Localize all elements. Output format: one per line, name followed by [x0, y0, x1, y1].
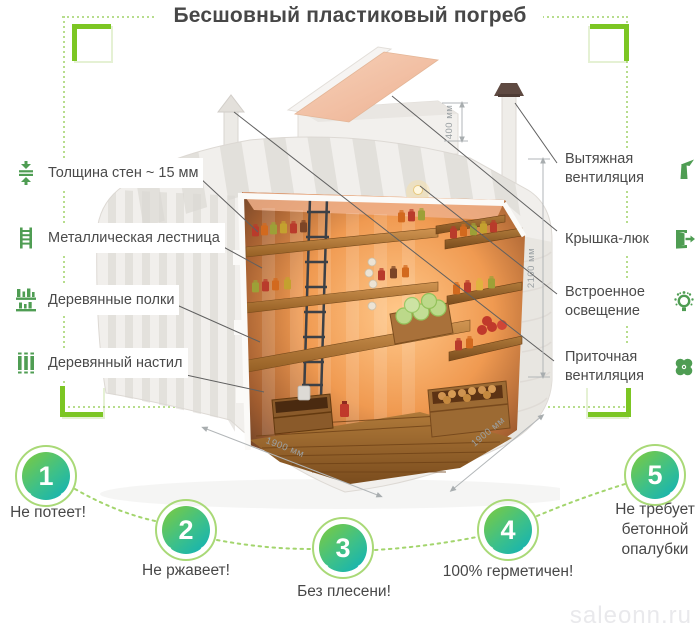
feature-wooden-shelves: Деревянные полки — [8, 285, 179, 315]
feature-wooden-shelves-label: Деревянные полки — [48, 292, 174, 308]
benefit-number-2: 2 — [162, 506, 210, 554]
benefit-label-4: 100% герметичен! — [433, 562, 583, 582]
feature-wall-thickness: Толщина стен ~ 15 мм — [8, 158, 203, 188]
hatch-icon — [671, 226, 697, 252]
benefit-number-4: 4 — [484, 506, 532, 554]
exhaust-vent-icon — [671, 156, 697, 182]
dimension-inner-height-label: 2100 мм — [526, 248, 537, 288]
benefit-label-1: Не потеет! — [0, 503, 96, 523]
frame-bracket-top-right — [590, 24, 629, 61]
benefit-badge-5: 5 — [624, 444, 686, 506]
benefit-badge-2: 2 — [155, 499, 217, 561]
benefit-badge-1: 1 — [15, 445, 77, 507]
feature-metal-ladder-label: Металлическая лестница — [48, 230, 220, 246]
benefit-number-5: 5 — [631, 451, 679, 499]
page-title: Бесшовный пластиковый погреб — [0, 4, 700, 28]
benefit-label-3: Без плесени! — [288, 582, 400, 602]
watermark: saleonn.ru — [570, 602, 692, 630]
cellar-illustration: 400 мм 2100 мм 1900 мм 1900 мм — [80, 44, 560, 510]
feature-wall-thickness-label: Толщина стен ~ 15 мм — [48, 165, 198, 181]
benefit-badge-4: 4 — [477, 499, 539, 561]
feature-exhaust-vent-label: Вытяжная вентиляция — [565, 150, 657, 188]
feature-metal-ladder: Металлическая лестница — [8, 223, 225, 253]
benefit-label-2: Не ржавеет! — [131, 561, 241, 581]
feature-wooden-decking: Деревянный настил — [8, 348, 188, 378]
frame-bracket-bottom-right — [588, 386, 631, 417]
supply-vent-icon — [671, 354, 697, 380]
ladder-icon — [13, 225, 39, 251]
feature-supply-vent: Приточная вентиляция — [560, 346, 700, 388]
infographic-canvas: Бесшовный пластиковый погреб — [0, 0, 700, 640]
feature-builtin-light: Встроенное освещение — [560, 281, 700, 323]
feature-hatch: Крышка-люк — [560, 224, 700, 254]
benefit-label-5: Не требует бетонной опалубки — [603, 500, 700, 560]
benefit-number-1: 1 — [22, 452, 70, 500]
feature-exhaust-vent: Вытяжная вентиляция — [560, 148, 700, 190]
shelves-icon — [13, 287, 39, 313]
benefit-number-3: 3 — [319, 524, 367, 572]
feature-hatch-label: Крышка-люк — [565, 230, 657, 249]
light-icon — [671, 289, 697, 315]
wall-thickness-icon — [13, 160, 39, 186]
feature-supply-vent-label: Приточная вентиляция — [565, 348, 657, 386]
benefit-badge-3: 3 — [312, 517, 374, 579]
feature-wooden-decking-label: Деревянный настил — [48, 355, 183, 371]
decking-icon — [13, 350, 39, 376]
feature-builtin-light-label: Встроенное освещение — [565, 283, 657, 321]
exhaust-vent-pipe — [494, 83, 524, 186]
page-title-text: Бесшовный пластиковый погреб — [157, 4, 542, 28]
dimension-neck-height-label: 400 мм — [444, 105, 455, 140]
